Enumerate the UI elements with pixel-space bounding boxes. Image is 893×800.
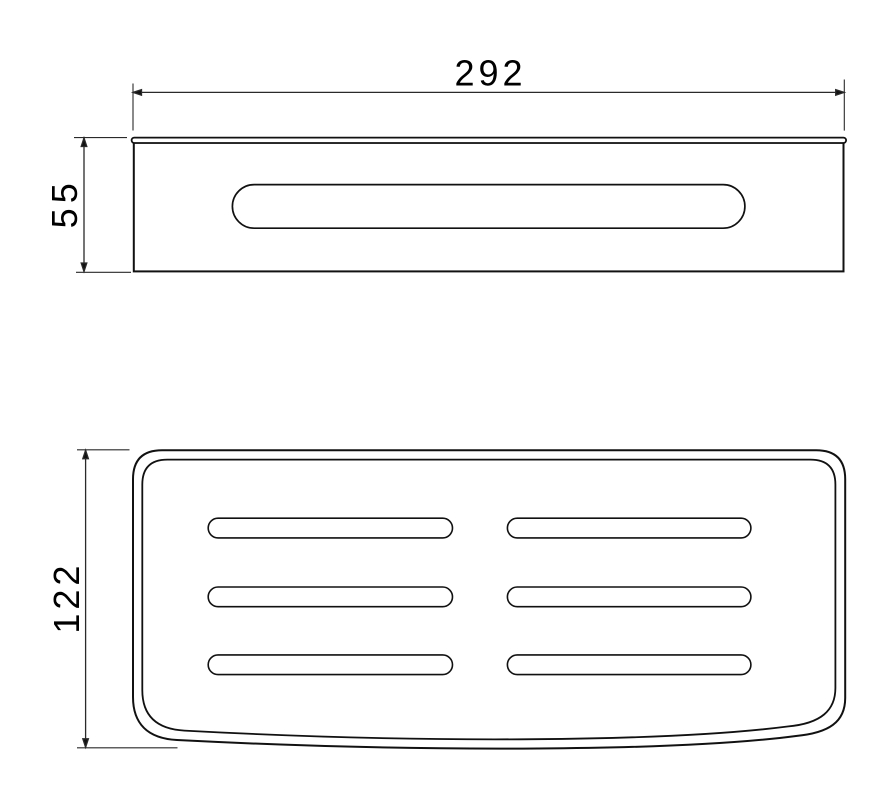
svg-text:122: 122 — [46, 562, 87, 634]
svg-text:55: 55 — [44, 178, 85, 228]
svg-text:292: 292 — [454, 53, 526, 94]
